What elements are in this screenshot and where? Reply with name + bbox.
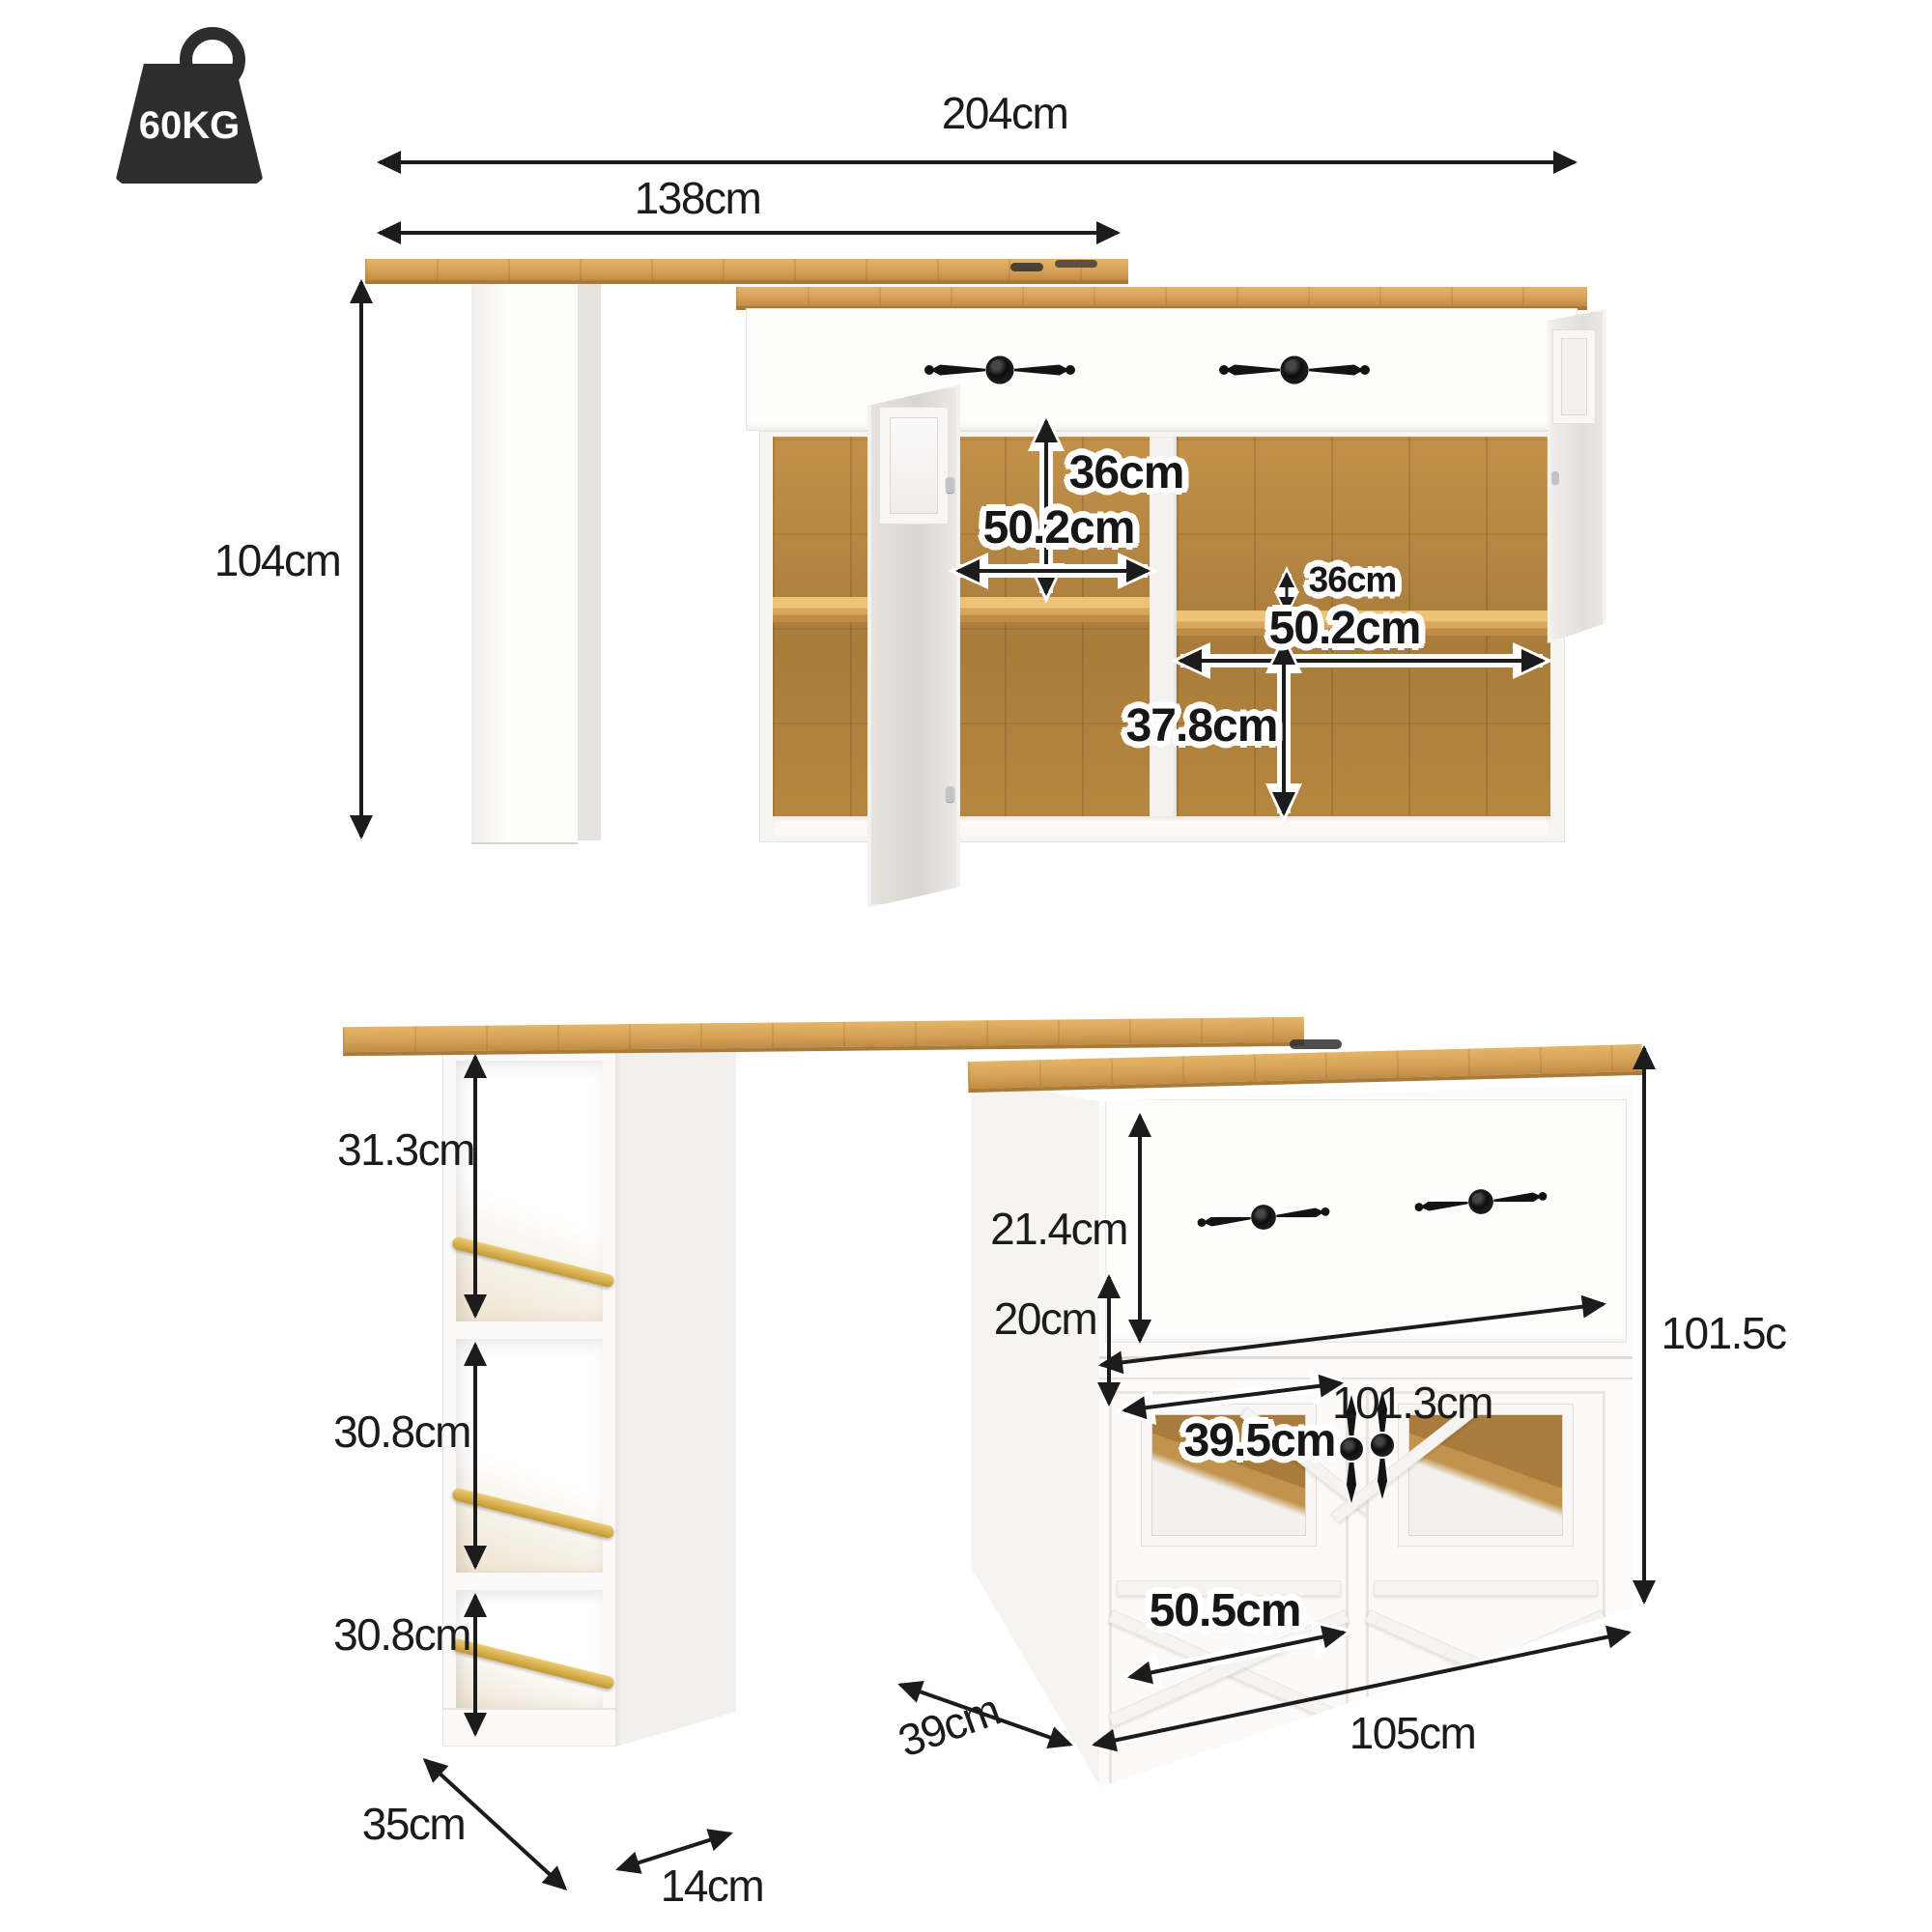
handle-leaf bbox=[1419, 1197, 1468, 1212]
label-column-depth: 35cm bbox=[362, 1802, 465, 1846]
label-inner-width: 101.3cm bbox=[1332, 1380, 1492, 1425]
label-cabinet-width: 105cm bbox=[1350, 1711, 1476, 1755]
label-shelf-2: 30.8cm bbox=[333, 1409, 470, 1454]
weight-capacity-icon: 60KG bbox=[106, 27, 290, 186]
handle-leaf bbox=[1014, 364, 1069, 377]
label-table-width: 138cm bbox=[635, 176, 761, 220]
handle-rosette bbox=[1340, 1437, 1363, 1461]
column-plinth-line bbox=[442, 1708, 616, 1710]
handle-leaf bbox=[1346, 1463, 1357, 1503]
label-compartment-width-left: 50.2cm bbox=[983, 505, 1135, 552]
handle-rosette bbox=[986, 356, 1014, 384]
handle-rosette bbox=[1250, 1204, 1277, 1231]
label-total-height: 104cm bbox=[214, 538, 341, 582]
cabinet-shelf-left bbox=[773, 597, 1150, 622]
drawer-handle-right-icon bbox=[1222, 353, 1367, 387]
door-hinge-icon bbox=[946, 786, 954, 802]
drawer-handle-left-icon bbox=[927, 353, 1072, 387]
door-window-right bbox=[1553, 330, 1596, 423]
handle-dot bbox=[1360, 365, 1370, 375]
swivel-hinge-mark bbox=[1055, 260, 1097, 268]
column-cubby-1 bbox=[456, 1061, 603, 1321]
handle-leaf bbox=[1276, 1207, 1325, 1222]
cabinet-top-top-view bbox=[736, 287, 1587, 310]
dimension-diagram: 60KG bbox=[0, 0, 1932, 1932]
label-compartment-width-right: 50.2cm bbox=[1269, 606, 1421, 652]
label-window-height: 20cm bbox=[994, 1296, 1096, 1341]
handle-rosette bbox=[1371, 1434, 1394, 1457]
door-hinge-icon bbox=[1551, 471, 1559, 485]
drawer-front-bottom-view bbox=[1105, 1099, 1627, 1343]
label-total-width: 204cm bbox=[942, 91, 1068, 135]
label-door-width: 50.5cm bbox=[1150, 1588, 1301, 1634]
label-column-width: 14cm bbox=[661, 1863, 763, 1908]
door-window-left bbox=[880, 408, 948, 524]
handle-rosette bbox=[1281, 356, 1309, 384]
label-cabinet-height: 101.5c bbox=[1661, 1311, 1785, 1355]
cabinet-door-right-open bbox=[1546, 307, 1607, 643]
label-cabinet-depth: 39cm bbox=[893, 1687, 1005, 1764]
swivel-hinge-mark-bottom bbox=[1290, 1039, 1342, 1049]
label-shelf-1: 31.3cm bbox=[337, 1127, 474, 1172]
table-leg-front bbox=[471, 280, 578, 844]
cabinet-door-left-open bbox=[866, 383, 962, 910]
cabinet-top-bottom-view bbox=[968, 1044, 1643, 1093]
shelf-column-side bbox=[616, 1049, 736, 1747]
column-cubby-2 bbox=[456, 1339, 603, 1573]
handle-leaf bbox=[1493, 1191, 1543, 1207]
handle-leaf bbox=[930, 364, 985, 377]
bar-tabletop-bottom-view bbox=[343, 1017, 1304, 1056]
weight-capacity-label: 60KG bbox=[116, 106, 263, 145]
handle-leaf bbox=[1202, 1212, 1251, 1228]
table-leg-side bbox=[578, 280, 601, 840]
barn-door-rail bbox=[1374, 1580, 1598, 1596]
handle-dot bbox=[1065, 365, 1075, 375]
label-compartment-height: 36cm bbox=[1069, 450, 1184, 497]
weight-body-icon: 60KG bbox=[116, 64, 263, 184]
cabinet-trim-line bbox=[1099, 1356, 1633, 1359]
label-shelf-spacing: 36cm bbox=[1309, 562, 1397, 598]
handle-leaf bbox=[1377, 1459, 1388, 1499]
handle-leaf bbox=[1225, 364, 1280, 377]
label-drawer-height: 21.4cm bbox=[990, 1207, 1127, 1251]
cabinet-side-face-bottom-view bbox=[971, 1080, 1099, 1785]
handle-rosette bbox=[1467, 1188, 1494, 1215]
handle-leaf bbox=[1309, 364, 1364, 377]
label-lower-height: 37.8cm bbox=[1126, 703, 1278, 750]
label-window-width: 39.5cm bbox=[1184, 1418, 1336, 1464]
cabinet-front-face-bottom-view bbox=[1099, 1084, 1633, 1787]
label-shelf-3: 30.8cm bbox=[333, 1612, 470, 1657]
swivel-hinge-mark bbox=[1010, 263, 1043, 271]
door-hinge-icon bbox=[946, 477, 954, 493]
